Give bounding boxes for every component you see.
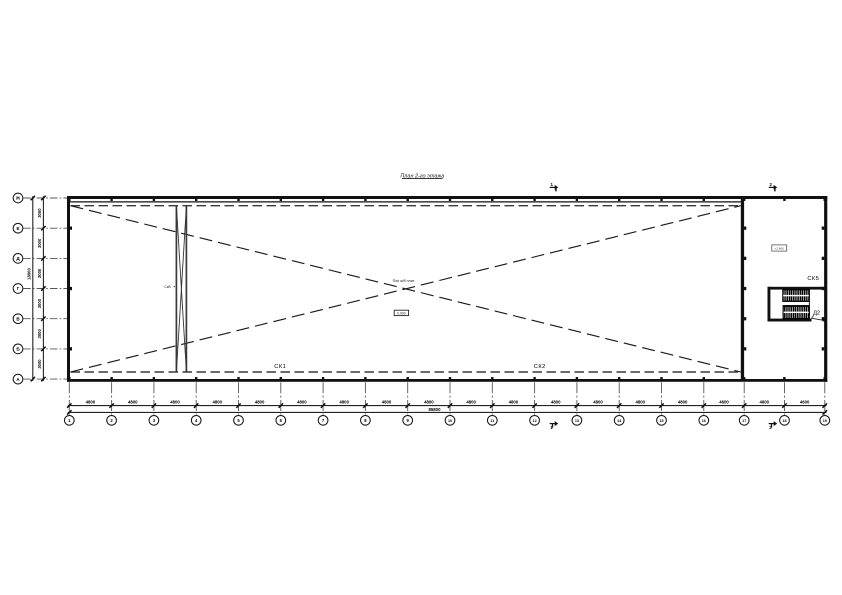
svg-text:0.000: 0.000 bbox=[397, 311, 406, 315]
svg-text:СкВ: СкВ bbox=[164, 285, 171, 289]
svg-text:Пол ж/б плит: Пол ж/б плит bbox=[393, 279, 415, 283]
svg-text:15: 15 bbox=[659, 419, 663, 423]
svg-text:СК5: СК5 bbox=[807, 276, 819, 282]
svg-text:Д2: Д2 bbox=[813, 311, 820, 317]
svg-text:10: 10 bbox=[448, 419, 452, 423]
svg-text:4600: 4600 bbox=[760, 400, 770, 405]
svg-text:4800: 4800 bbox=[509, 400, 519, 405]
svg-text:4800: 4800 bbox=[424, 400, 434, 405]
svg-text:18000: 18000 bbox=[26, 268, 31, 280]
svg-text:12: 12 bbox=[533, 419, 537, 423]
svg-text:4800: 4800 bbox=[170, 400, 180, 405]
svg-text:3000: 3000 bbox=[37, 238, 42, 248]
svg-text:4800: 4800 bbox=[297, 400, 307, 405]
svg-text:16: 16 bbox=[702, 419, 706, 423]
svg-text:3000: 3000 bbox=[37, 359, 42, 369]
svg-text:Г: Г bbox=[17, 286, 20, 291]
svg-text:4800: 4800 bbox=[636, 400, 646, 405]
svg-text:Ж: Ж bbox=[15, 196, 21, 201]
svg-text:4800: 4800 bbox=[128, 400, 138, 405]
svg-text:4800: 4800 bbox=[339, 400, 349, 405]
svg-text:4800: 4800 bbox=[466, 400, 476, 405]
svg-text:19: 19 bbox=[823, 419, 827, 423]
svg-text:СК1: СК1 bbox=[274, 364, 286, 370]
svg-text:4800: 4800 bbox=[213, 400, 223, 405]
svg-text:18: 18 bbox=[782, 419, 786, 423]
svg-text:+2.460: +2.460 bbox=[774, 247, 784, 251]
svg-text:3000: 3000 bbox=[37, 328, 42, 338]
svg-text:11: 11 bbox=[490, 419, 494, 423]
svg-text:4600: 4600 bbox=[719, 400, 729, 405]
svg-text:4600: 4600 bbox=[800, 400, 810, 405]
svg-text:4800: 4800 bbox=[593, 400, 603, 405]
svg-text:3000: 3000 bbox=[37, 268, 42, 278]
svg-text:4800: 4800 bbox=[255, 400, 265, 405]
svg-text:СК2: СК2 bbox=[534, 364, 546, 370]
svg-text:3000: 3000 bbox=[37, 298, 42, 308]
svg-text:4800: 4800 bbox=[678, 400, 688, 405]
svg-text:3000: 3000 bbox=[37, 208, 42, 218]
svg-text:85800: 85800 bbox=[429, 407, 442, 412]
svg-text:Е: Е bbox=[16, 226, 19, 231]
svg-text:4800: 4800 bbox=[551, 400, 561, 405]
svg-text:17: 17 bbox=[742, 419, 746, 423]
svg-text:4800: 4800 bbox=[86, 400, 96, 405]
svg-text:13: 13 bbox=[575, 419, 579, 423]
svg-text:4800: 4800 bbox=[382, 400, 392, 405]
